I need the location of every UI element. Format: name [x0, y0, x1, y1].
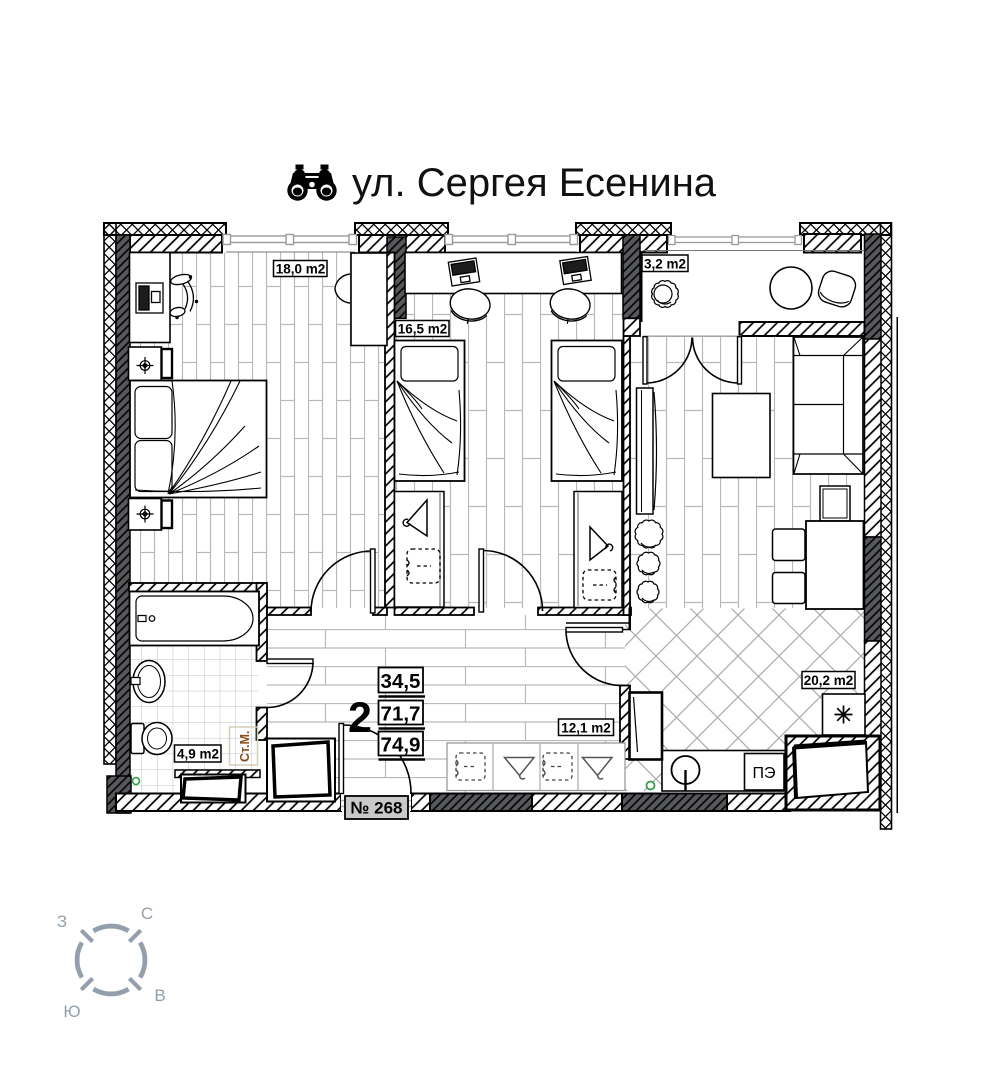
svg-text:16,5 m2: 16,5 m2 — [398, 322, 448, 337]
svg-text:71,7: 71,7 — [381, 703, 421, 726]
svg-text:Ю: Ю — [63, 1002, 80, 1021]
svg-text:Ст.М.: Ст.М. — [238, 731, 252, 762]
svg-text:18,0 m2: 18,0 m2 — [276, 262, 326, 277]
svg-text:З: З — [57, 912, 67, 931]
svg-text:В: В — [154, 986, 165, 1005]
svg-text:№ 268: № 268 — [350, 799, 402, 818]
svg-text:4,9 m2: 4,9 m2 — [177, 747, 219, 762]
svg-text:20,2 m2: 20,2 m2 — [804, 673, 854, 688]
svg-text:2: 2 — [348, 694, 372, 742]
svg-text:3,2 m2: 3,2 m2 — [644, 257, 686, 272]
svg-text:12,1 m2: 12,1 m2 — [561, 721, 611, 736]
svg-text:ул. Сергея Есенина: ул. Сергея Есенина — [352, 161, 717, 205]
svg-text:ПЭ: ПЭ — [753, 765, 776, 782]
svg-text:74,9: 74,9 — [381, 734, 421, 757]
svg-text:С: С — [141, 904, 153, 923]
svg-text:34,5: 34,5 — [381, 670, 421, 693]
